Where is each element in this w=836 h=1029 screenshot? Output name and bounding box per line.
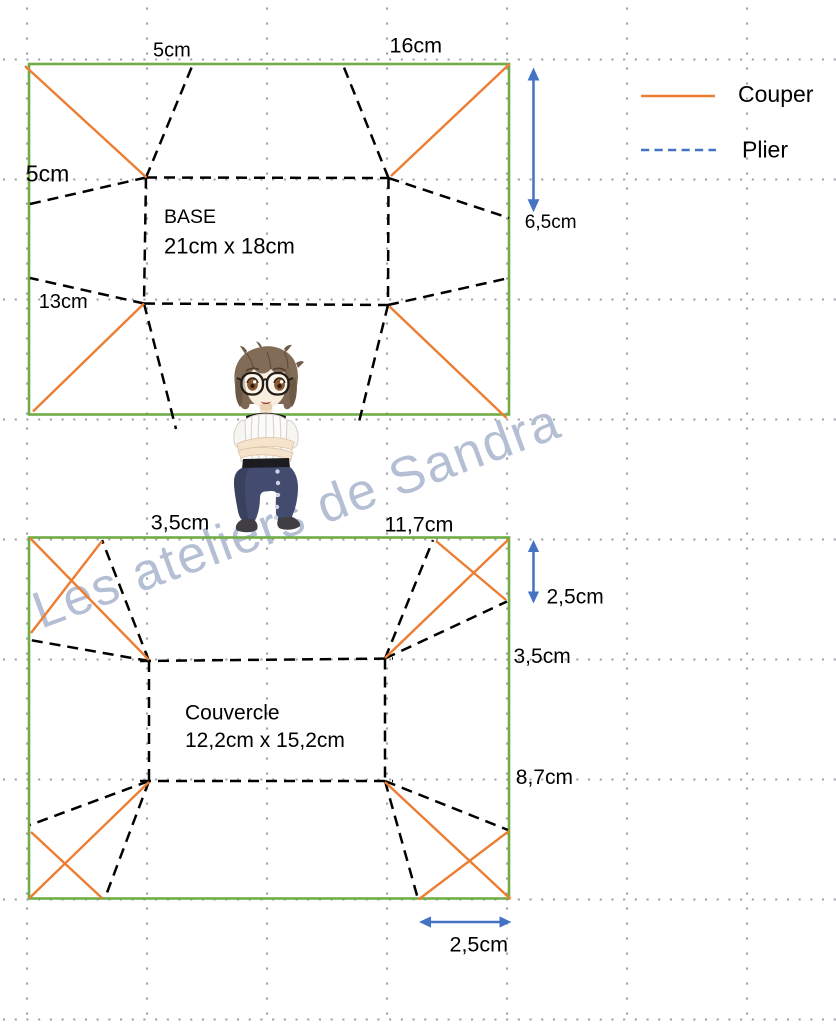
svg-text:11,7cm: 11,7cm <box>385 513 454 537</box>
svg-text:5cm: 5cm <box>153 40 191 62</box>
svg-text:3,5cm: 3,5cm <box>151 511 210 535</box>
svg-text:3,5cm: 3,5cm <box>514 645 571 668</box>
svg-text:Plier: Plier <box>742 137 788 163</box>
svg-text:13cm: 13cm <box>39 291 88 313</box>
svg-text:2,5cm: 2,5cm <box>547 586 604 609</box>
svg-text:5cm: 5cm <box>26 161 69 187</box>
svg-text:2,5cm: 2,5cm <box>450 933 509 957</box>
svg-text:Couper: Couper <box>738 81 814 107</box>
svg-text:21cm x 18cm: 21cm x 18cm <box>164 234 295 259</box>
svg-text:16cm: 16cm <box>390 34 443 58</box>
svg-text:Couvercle: Couvercle <box>185 701 280 724</box>
svg-text:8,7cm: 8,7cm <box>516 766 573 789</box>
svg-text:12,2cm x 15,2cm: 12,2cm x 15,2cm <box>185 729 345 752</box>
svg-text:BASE: BASE <box>164 206 216 228</box>
svg-text:6,5cm: 6,5cm <box>525 212 577 233</box>
